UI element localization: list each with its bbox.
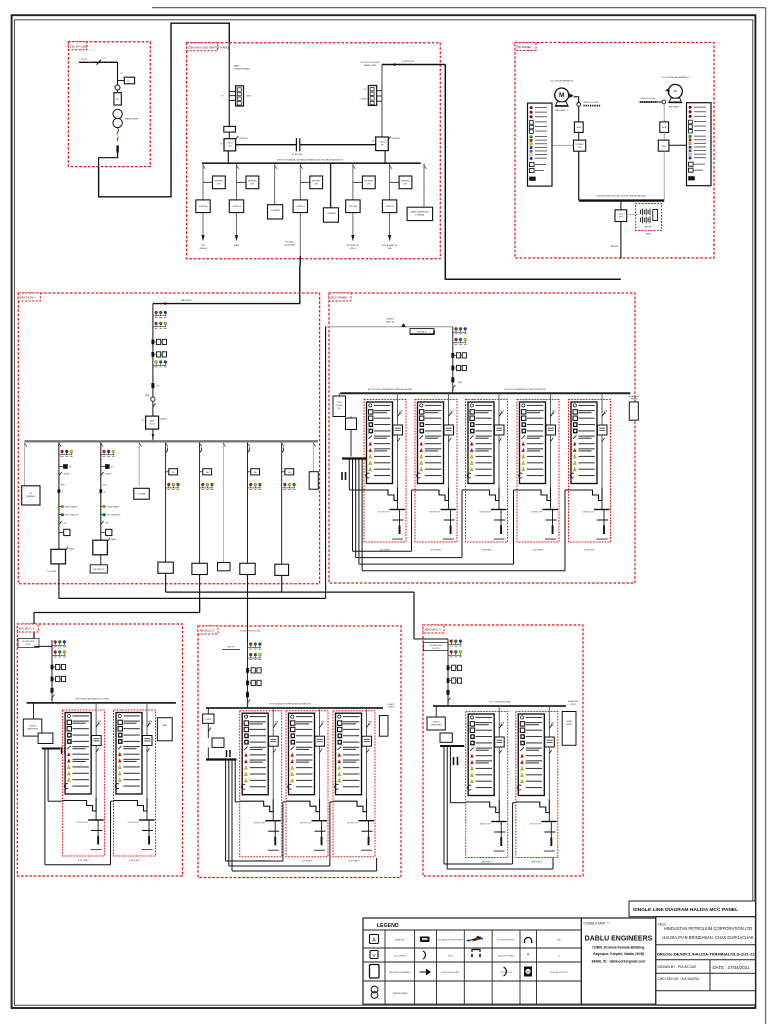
svg-text:MCC FOR FIRE & SEGREGATED PHAS: MCC FOR FIRE & SEGREGATED PHASE BUS NEUT… <box>368 388 412 391</box>
svg-text:ABS PUMP-1: ABS PUMP-1 <box>482 860 492 863</box>
svg-text:ABS MCC-3: ABS MCC-3 <box>425 628 442 632</box>
svg-text:13.8 KV PUMP & ABS MAIN MOTOR: 13.8 KV PUMP & ABS MAIN MOTOR T/B B/S <box>75 698 110 701</box>
svg-text:KW MOTOR: KW MOTOR <box>480 512 492 514</box>
svg-text:INCOMING FROM: INCOMING FROM <box>430 645 442 647</box>
svg-text:CONSULTANT >: CONSULTANT > <box>584 922 609 926</box>
svg-text:FUSE SWITCH UNIT: FUSE SWITCH UNIT <box>441 972 460 974</box>
svg-text:415V TO 88F (A) BUS MAIN: 415V TO 88F (A) BUS MAIN <box>489 701 511 704</box>
svg-text:MAIN: MAIN <box>234 65 240 68</box>
svg-text:SECTION-1: SECTION-1 <box>20 296 36 300</box>
svg-text:132KV: 132KV <box>379 141 385 143</box>
svg-text:ABS PUMP-2: ABS PUMP-2 <box>532 860 542 863</box>
svg-text:KV NETWORK: KV NETWORK <box>402 61 415 63</box>
svg-text:UNIT: UNIT <box>314 183 318 185</box>
svg-text:METERING: METERING <box>312 180 321 182</box>
svg-text:AMF PANEL - 1: AMF PANEL - 1 <box>555 109 568 112</box>
svg-text:KW MOTOR: KW MOTOR <box>429 512 441 514</box>
svg-text:METERING: METERING <box>248 180 257 182</box>
svg-text:ELECTRIC MOTOR: ELECTRIC MOTOR <box>551 972 569 974</box>
svg-text:CONTROL: CONTROL <box>29 726 36 728</box>
svg-text:PCC SEC-1: PCC SEC-1 <box>432 648 440 650</box>
svg-text:UNIT: UNIT <box>367 183 371 185</box>
svg-text:PNL: PNL <box>338 408 341 410</box>
svg-text:FD MOTOR-5: FD MOTOR-5 <box>584 550 595 552</box>
svg-text:MCC PANEL: MCC PANEL <box>331 296 349 300</box>
svg-text:TERM-1 B/S: TERM-1 B/S <box>386 322 395 324</box>
svg-text:SYNCHRO: SYNCHRO <box>576 144 585 146</box>
svg-text:72/B/8 ,Krishna Kamala Buildin: 72/B/8 ,Krishna Kamala Building, <box>592 946 645 950</box>
svg-text:KW MOTOR: KW MOTOR <box>531 512 543 514</box>
svg-text:MCCB: MCCB <box>150 424 156 426</box>
svg-text:CHECKED BY : A.K HAZRA: CHECKED BY : A.K HAZRA <box>658 977 700 981</box>
svg-text:415V PUMP-3: 415V PUMP-3 <box>481 550 492 552</box>
svg-text:INCOMING FROM: INCOMING FROM <box>23 641 35 643</box>
svg-text:DABLU ENGINEERS: DABLU ENGINEERS <box>585 936 653 943</box>
svg-text:SECTION-1: SECTION-1 <box>285 242 294 244</box>
svg-text:TRANSFORMER: TRANSFORMER <box>234 68 251 71</box>
svg-text:KW MOTOR: KW MOTOR <box>480 824 492 826</box>
svg-text:TRANSFORMER: TRANSFORMER <box>392 992 407 995</box>
svg-text:P/H MCC-1: P/H MCC-1 <box>19 627 35 631</box>
svg-text:SHEALD TEMP: SHEALD TEMP <box>364 64 377 67</box>
svg-text:SYNCHRONIZING (MUTUAL) SYSTEM: SYNCHRONIZING (MUTUAL) SYSTEM CENTRAL A/… <box>596 195 647 198</box>
svg-text:415V PUMP-1: 415V PUMP-1 <box>380 550 391 552</box>
svg-text:AMMETER: AMMETER <box>395 938 405 941</box>
svg-text:METERING: METERING <box>401 180 410 182</box>
svg-text:DG ROOM: DG ROOM <box>47 571 56 573</box>
svg-text:132 KV LINE: 132 KV LINE <box>70 44 87 48</box>
svg-text:METERING: METERING <box>365 180 374 182</box>
svg-text:AMF PANEL - 2: AMF PANEL - 2 <box>669 106 682 109</box>
svg-text:50/5: 50/5 <box>63 523 66 525</box>
svg-text:KW MOTOR: KW MOTOR <box>347 823 359 825</box>
svg-text:415V PUMP-1: 415V PUMP-1 <box>78 860 89 862</box>
svg-text:KW MOTOR: KW MOTOR <box>300 823 312 825</box>
svg-text:M: M <box>526 969 529 974</box>
svg-text:(PMD-1): (PMD-1) <box>350 248 357 250</box>
svg-text:DATE : 27/04/2021: DATE : 27/04/2021 <box>712 965 750 970</box>
svg-text:M: M <box>559 92 564 99</box>
svg-text:METERING: METERING <box>215 180 224 182</box>
svg-text:BUS PCC FOR HALDIA & B/S HALDI: BUS PCC FOR HALDIA & B/S HALDIA TERMINAL… <box>277 159 343 162</box>
svg-text:KW MOTOR: KW MOTOR <box>583 512 595 514</box>
svg-text:GT1: GT1 <box>363 89 367 91</box>
svg-text:415V PUMP-2: 415V PUMP-2 <box>302 861 313 863</box>
svg-text:ADITYA BIDYUT: ADITYA BIDYUT <box>347 244 360 247</box>
svg-text:132KV: 132KV <box>246 95 252 97</box>
svg-text:LEGEND: LEGEND <box>377 923 399 929</box>
svg-text:SF: SF <box>111 467 113 469</box>
svg-text:CONTROL: CONTROL <box>336 405 343 407</box>
svg-text:KW MOTOR: KW MOTOR <box>77 822 89 824</box>
svg-text:HALDIA,PV-B BRINDABAN, CHAK DU: HALDIA,PV-B BRINDABAN, CHAK DURGACHAK <box>662 935 753 940</box>
svg-text:DG-1 500KVA GENERATOR: DG-1 500KVA GENERATOR <box>550 79 574 82</box>
svg-text:CONTROL: CONTROL <box>432 722 439 724</box>
svg-text:440V TPN: 440V TPN <box>228 647 235 649</box>
svg-text:50/5: 50/5 <box>105 523 108 525</box>
svg-text:DG-2 500KVA GAS GENERATOR: DG-2 500KVA GAS GENERATOR <box>662 76 690 79</box>
svg-text:132KV: 132KV <box>227 143 233 145</box>
svg-text:DIGITAL MULTI METER MFM: DIGITAL MULTI METER MFM <box>438 938 464 941</box>
svg-text:415V PUMP-4: 415V PUMP-4 <box>533 550 544 552</box>
svg-text:SPARE: SPARE <box>234 244 240 247</box>
svg-text:CONTROL: CONTROL <box>205 719 212 721</box>
svg-text:800A/4P: 800A/4P <box>160 417 168 420</box>
svg-text:UNIT: UNIT <box>404 183 408 185</box>
svg-text:ISOLATOR: ISOLATOR <box>392 137 401 140</box>
svg-text:KW MOTOR: KW MOTOR <box>530 824 542 826</box>
svg-text:415V PUMP-2: 415V PUMP-2 <box>431 550 442 552</box>
svg-text:MCC SECTION A (AS AND MOTORS): MCC SECTION A (AS AND MOTORS) DISTRIBUTI… <box>504 388 546 391</box>
svg-text:SINGLE O/G LINE: SINGLE O/G LINE <box>641 98 657 100</box>
svg-text:HT BUS GIS: HT BUS GIS <box>292 154 303 156</box>
svg-text:UNIT: UNIT <box>578 147 582 149</box>
svg-text:KW MOTOR: KW MOTOR <box>128 822 140 824</box>
svg-text:415V PUMP-1: 415V PUMP-1 <box>255 861 266 863</box>
svg-text:132 KV: 132 KV <box>81 59 88 61</box>
svg-text:KW MOTOR: KW MOTOR <box>378 512 390 514</box>
svg-text:ATS 63A 4P: ATS 63A 4P <box>417 330 427 333</box>
svg-text:GIS 11KV/3MT: GIS 11KV/3MT <box>284 245 295 247</box>
svg-text:KW MOTOR: KW MOTOR <box>254 823 266 825</box>
svg-text:ACB: ACB <box>662 126 667 129</box>
svg-text:DG SET: DG SET <box>26 644 31 646</box>
svg-text:DRAWN BY : PULAK DAS: DRAWN BY : PULAK DAS <box>658 965 698 969</box>
svg-text:~: ~ <box>673 89 677 96</box>
svg-text:AIR CIRCUIT BREAKER: AIR CIRCUIT BREAKER <box>389 971 411 974</box>
svg-text:MAIN BUS: MAIN BUS <box>181 299 192 302</box>
svg-text:HINDUSTAN PETROLIUM CORPORATI: HINDUSTAN PETROLIUM CORPORATION LTD <box>664 926 753 931</box>
svg-text:33KV/6KV GIS SWITCHYARD: 33KV/6KV GIS SWITCHYARD <box>188 45 229 49</box>
svg-text:AB MCC-2: AB MCC-2 <box>200 629 215 633</box>
svg-text:MCB: MCB <box>448 955 453 957</box>
svg-text:UNIT: UNIT <box>217 183 221 185</box>
svg-text:400 KWTTH-X BOILER: 400 KWTTH-X BOILER <box>361 62 380 64</box>
svg-text:FEEDER: FEEDER <box>566 724 572 726</box>
svg-text:SINGLE LINE DIAGRAM HALDIA MCC: SINGLE LINE DIAGRAM HALDIA MCC PANEL <box>633 907 738 913</box>
svg-text:SPARE-A: SPARE-A <box>199 247 207 250</box>
svg-text:VOLT METER: VOLT METER <box>394 955 407 957</box>
svg-text:INCOMING FROM PCC LINE: INCOMING FROM PCC LINE <box>240 631 260 633</box>
svg-text:DRG.No:DE/HPCL/HALDIA-TERMINAL: DRG.No:DE/HPCL/HALDIA-TERMINAL/SLD-2/21-… <box>657 951 755 956</box>
svg-text:MOTOR & ABS MOTOR FEEDS MAIN D: MOTOR & ABS MOTOR FEEDS MAIN DISTRIBUTIO… <box>269 703 311 706</box>
svg-text:ADITYA SAGES-LB: ADITYA SAGES-LB <box>382 244 398 247</box>
svg-text:1.25MVA: 1.25MVA <box>360 98 368 101</box>
svg-text:SF: SF <box>157 386 159 388</box>
svg-text:Gayespur, Kalyani, Nadia, (W.B: Gayespur, Kalyani, Nadia, (W.B) <box>593 952 644 956</box>
svg-text:SF: SF <box>69 467 71 469</box>
svg-text:TRANSFORMER: TRANSFORMER <box>125 118 140 121</box>
svg-text:ISOLATOR: ISOLATOR <box>239 137 248 140</box>
svg-text:PROTECTION UNIT: PROTECTION UNIT <box>497 939 515 941</box>
svg-text:UNIT: UNIT <box>251 183 255 185</box>
svg-text:EMAIL ID : dablueet3@gmail.com: EMAIL ID : dablueet3@gmail.com <box>592 960 646 964</box>
svg-text:415V PUMP-2: 415V PUMP-2 <box>129 860 140 862</box>
svg-text:SINGLE O/G LINE: SINGLE O/G LINE <box>584 102 600 104</box>
svg-text:ACB: ACB <box>577 126 582 129</box>
svg-text:LINK JUNCTION B: LINK JUNCTION B <box>498 955 515 957</box>
svg-text:BATTERY: BATTERY <box>611 245 620 248</box>
svg-text:DG PANEL: DG PANEL <box>517 45 532 49</box>
svg-text:415V PUMP-3: 415V PUMP-3 <box>349 861 360 863</box>
